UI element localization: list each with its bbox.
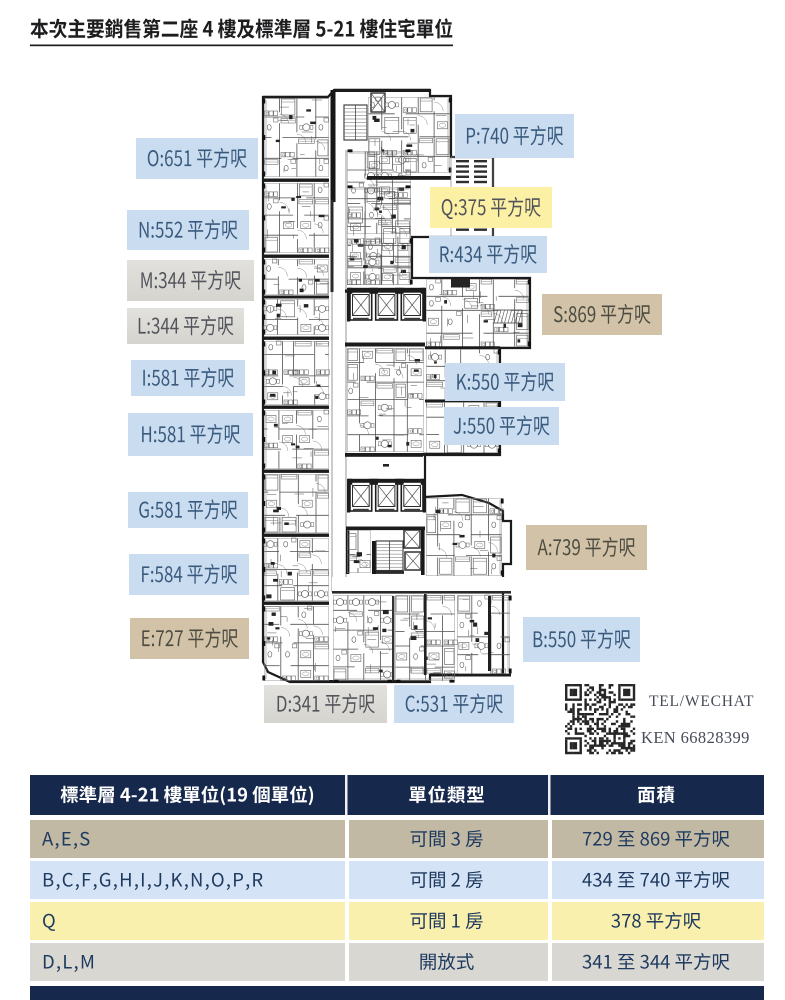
svg-text:KEN 66828399: KEN 66828399 xyxy=(641,728,750,747)
svg-text:TEL/WECHAT: TEL/WECHAT xyxy=(649,693,754,710)
